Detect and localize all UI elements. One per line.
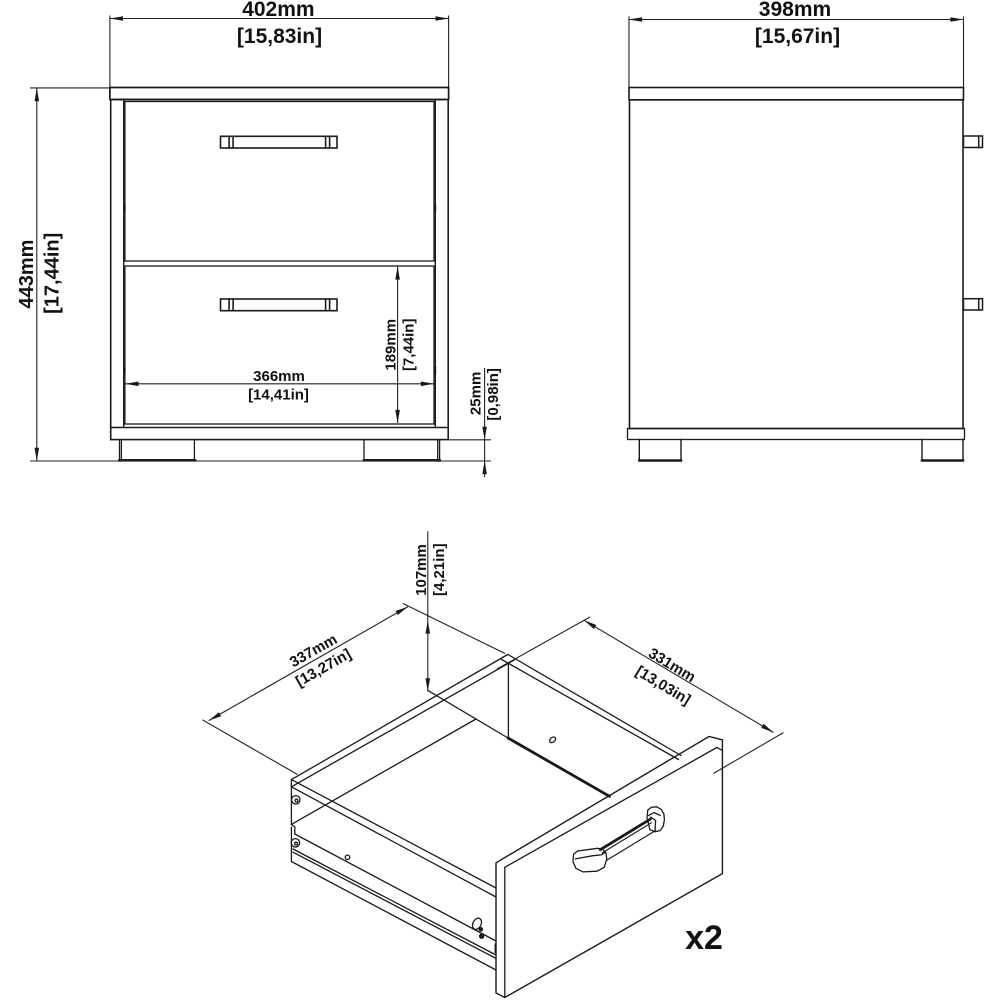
svg-text:[14,41in]: [14,41in] bbox=[248, 387, 309, 404]
svg-text:25mm: 25mm bbox=[467, 372, 484, 415]
svg-text:[15,67in]: [15,67in] bbox=[755, 25, 840, 48]
svg-text:[17,44in]: [17,44in] bbox=[42, 233, 64, 314]
svg-text:366mm: 366mm bbox=[253, 368, 305, 385]
svg-text:189mm: 189mm bbox=[383, 319, 400, 371]
svg-text:398mm: 398mm bbox=[759, 0, 831, 21]
svg-text:[0,98in]: [0,98in] bbox=[485, 368, 502, 421]
svg-text:[15,83in]: [15,83in] bbox=[237, 25, 322, 48]
svg-text:x2: x2 bbox=[685, 919, 723, 957]
svg-text:443mm: 443mm bbox=[16, 240, 38, 309]
svg-text:107mm: 107mm bbox=[413, 544, 430, 596]
svg-text:402mm: 402mm bbox=[242, 0, 314, 21]
svg-text:[4,21in]: [4,21in] bbox=[431, 543, 448, 596]
svg-text:[7,44in]: [7,44in] bbox=[401, 319, 418, 372]
